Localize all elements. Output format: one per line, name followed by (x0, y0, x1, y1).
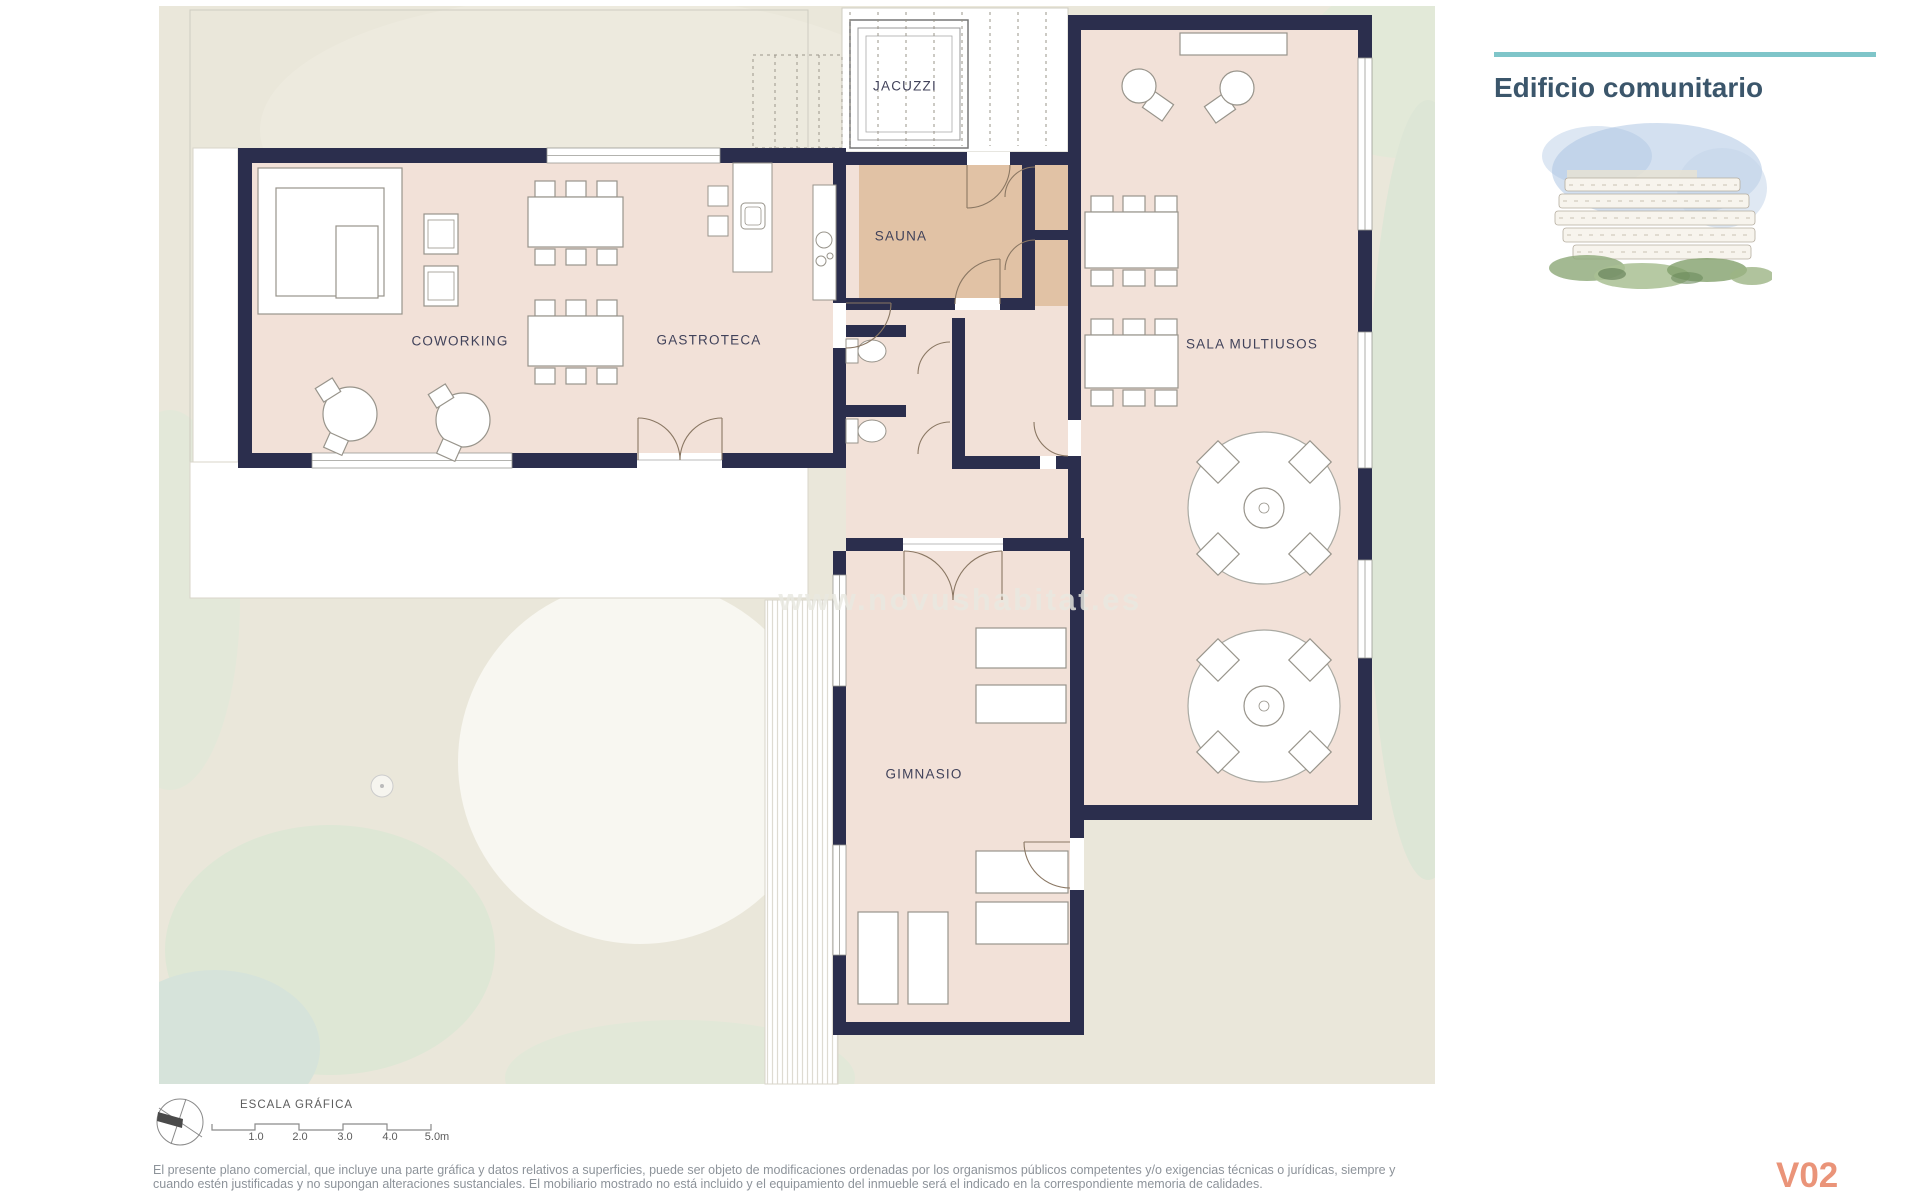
scale-tick-2: 2.0 (292, 1131, 307, 1143)
accent-rule (1494, 52, 1876, 57)
room-label-sauna: SAUNA (875, 229, 928, 244)
scale-bar-graphic (212, 1124, 431, 1130)
page: COWORKING GASTROTECA SAUNA JACUZZI SALA … (0, 0, 1920, 1200)
room-label-jacuzzi: JACUZZI (873, 79, 937, 94)
scale-tick-4: 4.0 (382, 1131, 397, 1143)
room-label-gimnasio: GIMNASIO (885, 767, 962, 782)
room-label-gastroteca: GASTROTECA (656, 333, 761, 348)
scale-tick-1: 1.0 (248, 1131, 263, 1143)
scale-tick-3: 3.0 (337, 1131, 352, 1143)
watermark: www.novushabitat.es (778, 582, 1141, 618)
scale-bar-title: ESCALA GRÁFICA (240, 1099, 353, 1111)
disclaimer-line-1: El presente plano comercial, que incluye… (153, 1163, 1395, 1177)
scale-tick-5: 5.0m (425, 1131, 449, 1143)
building-render-illustration (1537, 116, 1772, 301)
disclaimer-line-2: cuando estén justificadas y no supongan … (153, 1177, 1263, 1191)
north-compass-icon (157, 1099, 203, 1145)
room-label-sala-multiusos: SALA MULTIUSOS (1186, 337, 1318, 352)
room-label-coworking: COWORKING (411, 334, 508, 349)
page-title: Edificio comunitario (1494, 72, 1763, 104)
version-badge: V02 (1776, 1156, 1838, 1196)
